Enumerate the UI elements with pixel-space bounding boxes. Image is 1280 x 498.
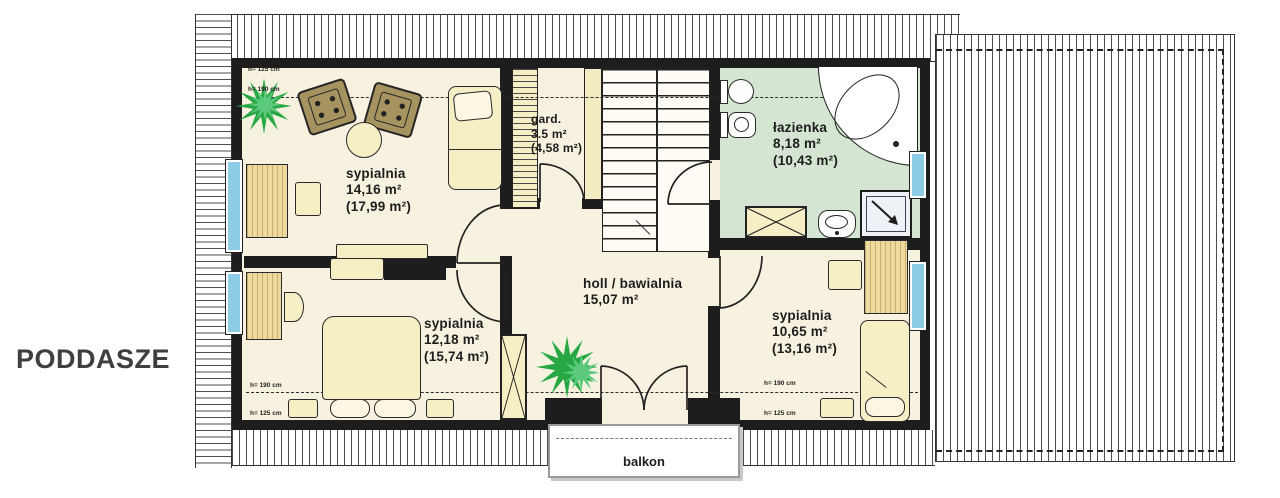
- nightstand: [820, 398, 854, 418]
- blanket-line: [449, 149, 501, 150]
- height-mark: h= 125 cm: [250, 410, 282, 417]
- window: [226, 160, 242, 252]
- window: [910, 262, 926, 330]
- armchair-cushion: [307, 88, 347, 126]
- bathtub-faucet: [893, 141, 899, 147]
- washbasin-drain: [835, 231, 839, 235]
- balcony-threshold: [556, 438, 732, 439]
- bidet-tank: [720, 112, 728, 138]
- balcony-double-door: [598, 364, 690, 414]
- shower-drain-arrow: [862, 192, 910, 236]
- cabinet-x: [745, 206, 807, 238]
- toilet-icon: [728, 79, 754, 104]
- desk: [864, 240, 908, 314]
- bidet-bowl: [734, 117, 749, 132]
- chimney-duct: [584, 68, 602, 200]
- wardrobe-x: [500, 334, 527, 420]
- pillow: [453, 90, 494, 122]
- pillow: [374, 399, 416, 418]
- washbasin-bowl: [825, 215, 848, 229]
- door-garderoba: [538, 162, 586, 204]
- chair: [295, 182, 321, 216]
- chair: [284, 292, 304, 322]
- nightstand: [426, 399, 454, 418]
- roof-hatch-right: [935, 34, 1235, 462]
- door-room7: [718, 254, 764, 310]
- room-label-holl: holl / bawialnia 15,07 m²: [583, 276, 682, 309]
- room-label-sypialnia-3: sypialnia 10,65 m² (13,16 m²): [772, 308, 837, 357]
- height-mark: h= 125 cm: [764, 410, 796, 417]
- room-label-garderoba: gard. 3.5 m² (4,58 m²): [531, 112, 582, 156]
- room-label-sypialnia-1: sypialnia 14,16 m² (17,99 m²): [346, 166, 411, 215]
- height-mark: h= 190 cm: [250, 382, 282, 389]
- armchair-cushion: [373, 91, 412, 129]
- height-mark: h= 190 cm: [764, 380, 796, 387]
- window: [910, 152, 926, 198]
- door-room1: [455, 203, 507, 265]
- balcony-label: balkon: [550, 454, 738, 469]
- blanket-fold: [865, 371, 886, 388]
- roof-hatch-top: [195, 14, 960, 62]
- stair-treads-right: [656, 69, 709, 165]
- door-bathroom: [666, 160, 714, 206]
- height-mark: h= 125 cm: [248, 66, 280, 73]
- desk: [246, 164, 288, 238]
- nightstand: [288, 399, 318, 418]
- door-room6: [455, 268, 507, 324]
- dresser: [336, 244, 428, 259]
- bed: [860, 320, 910, 422]
- bed: [448, 86, 502, 190]
- balcony: balkon: [548, 424, 740, 478]
- height-mark: h= 190 cm: [248, 86, 280, 93]
- bidet-icon: [728, 112, 756, 138]
- round-table: [346, 122, 382, 158]
- shower: [860, 190, 912, 238]
- plant-icon: [536, 336, 598, 398]
- roof-dashed-edge: [936, 49, 1224, 452]
- wall-pier: [384, 256, 446, 280]
- dresser: [330, 258, 384, 280]
- desk: [246, 272, 282, 340]
- double-bed: [322, 316, 421, 400]
- washbasin: [818, 210, 856, 238]
- pillow: [330, 399, 370, 418]
- floor-plan-page: PODDASZE: [0, 0, 1280, 498]
- window: [226, 272, 242, 334]
- pillow: [865, 397, 905, 417]
- floor-title: PODDASZE: [16, 344, 170, 375]
- toilet-tank: [720, 80, 728, 104]
- chair: [828, 260, 862, 290]
- room-label-lazienka: łazienka 8,18 m² (10,43 m²): [773, 120, 838, 169]
